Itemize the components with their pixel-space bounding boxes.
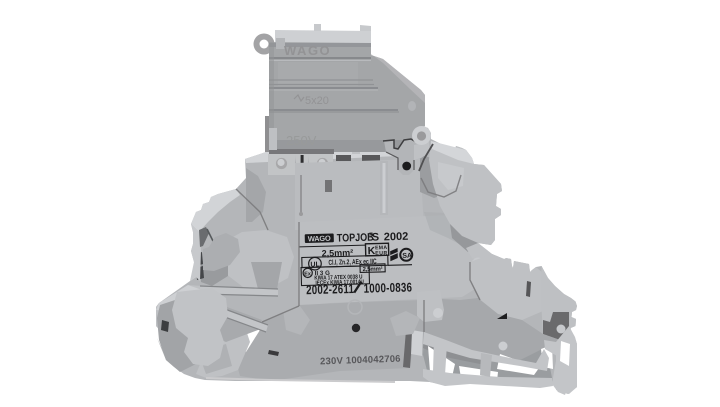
svg-text:2002: 2002 [384,231,409,244]
svg-text:SA: SA [402,253,412,260]
svg-text:2,5mm²: 2,5mm² [363,266,383,274]
svg-text:250V: 250V [286,133,317,148]
svg-text:WAGO: WAGO [284,43,331,58]
svg-text:1000-0836: 1000-0836 [363,281,412,296]
svg-text:WAGO: WAGO [308,234,331,244]
svg-text:5x20: 5x20 [305,95,329,107]
svg-text:2002-2611: 2002-2611 [306,283,354,298]
svg-text:Ex: Ex [304,271,312,277]
svg-text:S: S [372,231,380,243]
